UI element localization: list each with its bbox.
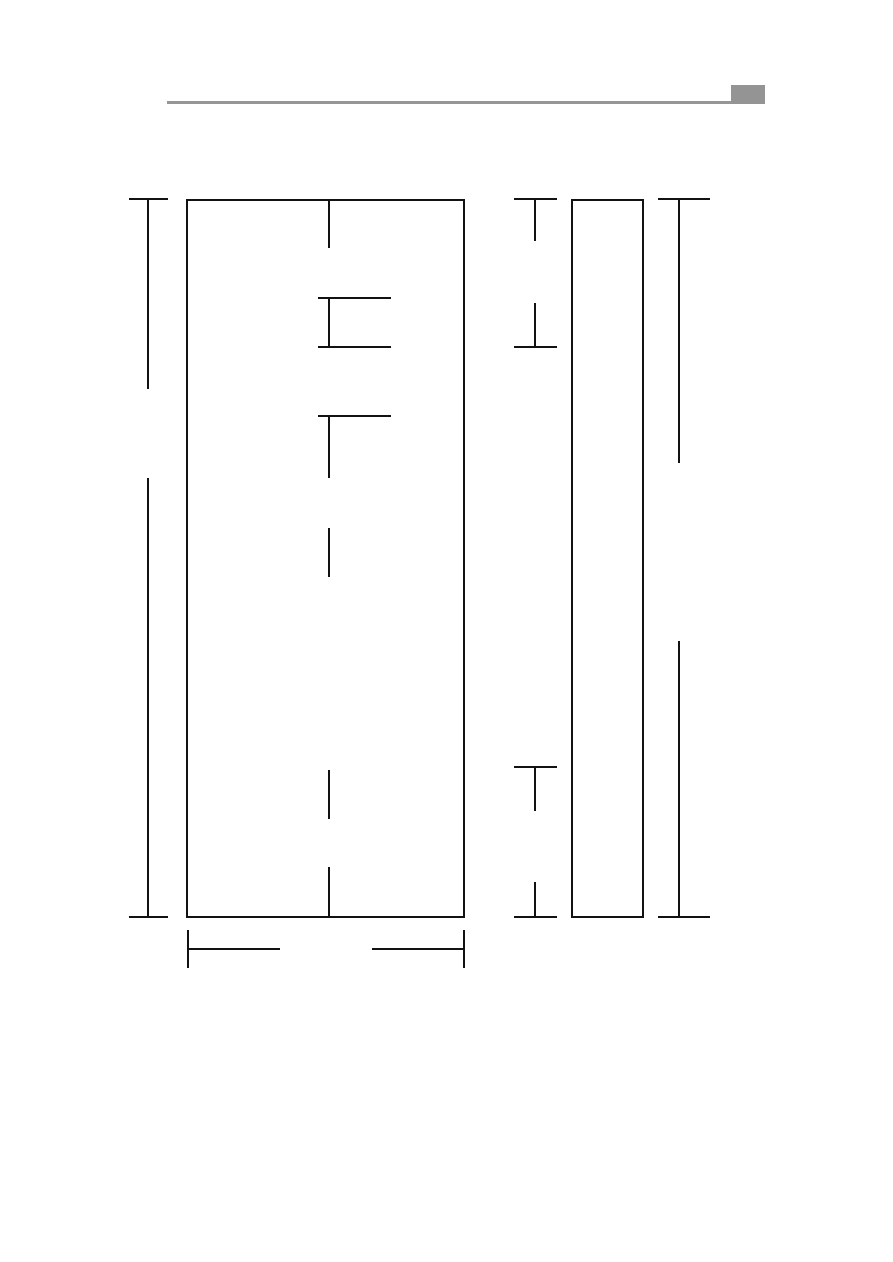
side-view-outline [572,200,643,917]
manual-page [0,0,893,1262]
dimension-diagram [0,0,893,1262]
header-corner-tab [731,85,765,104]
header-rule [167,101,731,104]
front-view-outline [187,200,464,917]
